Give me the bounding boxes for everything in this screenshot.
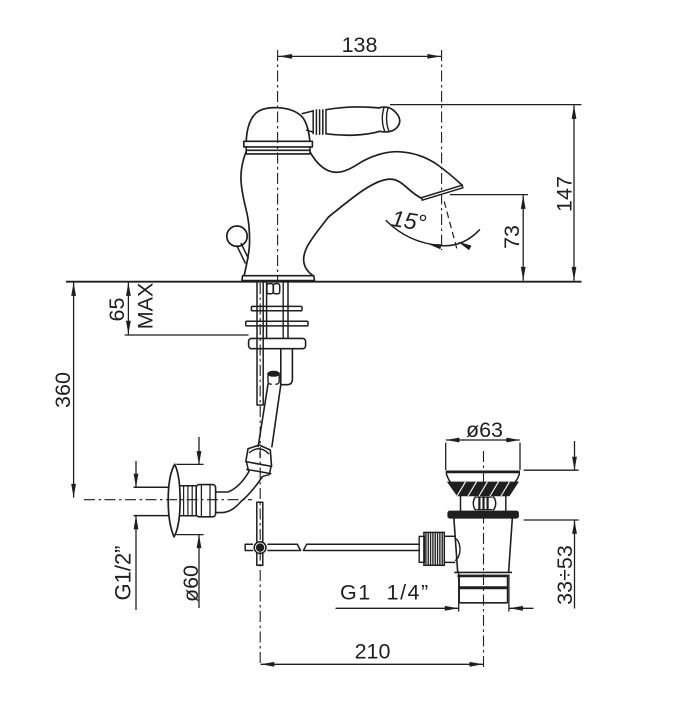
svg-text:ø63: ø63 [466,418,503,442]
svg-text:147: 147 [553,176,577,212]
svg-text:15°: 15° [390,205,428,236]
svg-text:360: 360 [51,372,75,408]
svg-text:65: 65 [105,298,129,322]
svg-text:210: 210 [355,640,391,664]
svg-text:138: 138 [342,33,378,57]
svg-text:73: 73 [500,225,524,249]
svg-text:ø60: ø60 [179,565,203,602]
svg-text:33÷53: 33÷53 [553,545,577,605]
svg-text:G1 1/4”: G1 1/4” [340,581,430,605]
svg-text:MAX: MAX [134,283,158,330]
svg-text:G1/2”: G1/2” [111,545,136,600]
